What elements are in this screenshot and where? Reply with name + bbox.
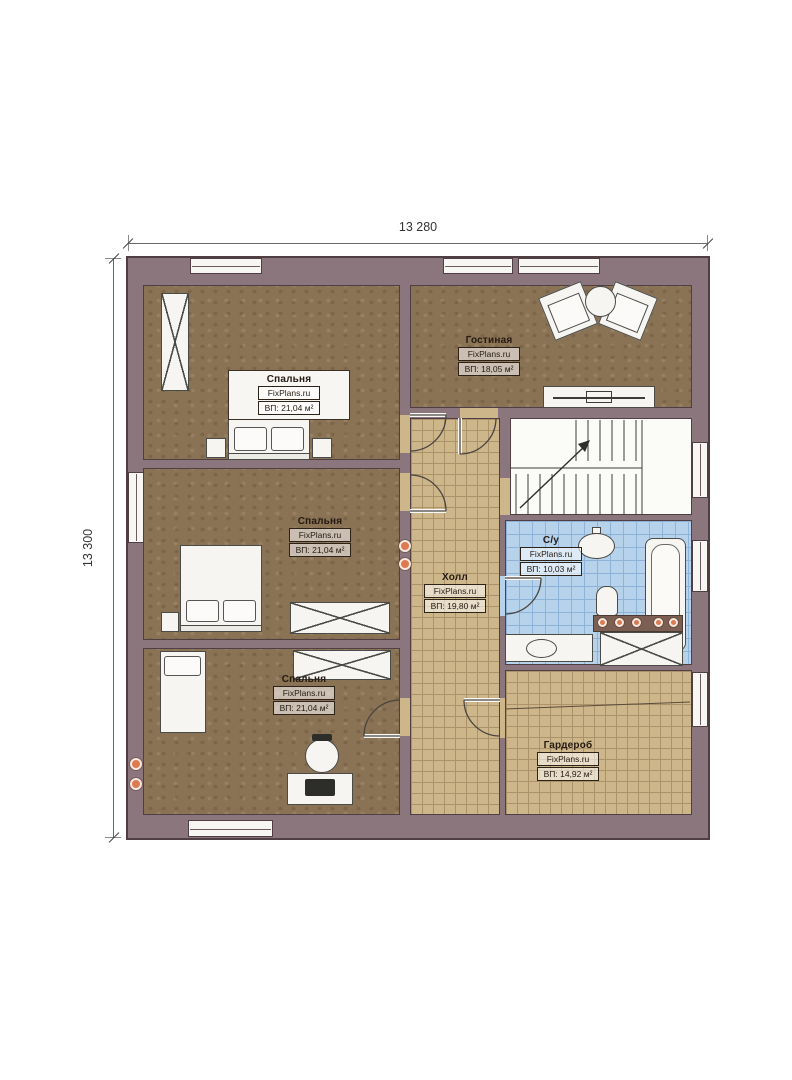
vanity-sink [526,639,557,658]
sideboard-center [586,391,612,403]
window-top-living-2 [518,258,600,274]
desk-chair-back [312,734,332,741]
toilet [596,586,618,616]
room-name: С/у [543,535,559,546]
room-staircase [510,418,692,515]
room-area: ВП: 14,92 м² [537,767,599,781]
room-area: ВП: 18,05 м² [458,362,520,376]
watermark: FixPlans.ru [273,686,335,700]
tv-sideboard [543,386,655,408]
room-name: Спальня [298,516,343,527]
door-opening-bedroom-1 [400,415,410,453]
pillow [164,656,201,676]
window-right-bathroom [692,540,708,592]
bed-headboard [228,453,310,460]
door-opening-bedroom-3 [400,698,410,736]
window-bottom-bedroom-3 [188,820,273,837]
armchair-seat [547,293,590,334]
spotlight [654,618,663,627]
label-bedroom-3: Спальня FixPlans.ru ВП: 21,04 м² [252,674,356,715]
vanity-unit [505,634,593,662]
nightstand [206,438,226,458]
label-hall: Холл FixPlans.ru ВП: 19,80 м² [415,572,495,613]
spotlight [669,618,678,627]
watermark: FixPlans.ru [424,584,486,598]
bed-headboard [180,625,262,632]
window-left-bedroom-2 [128,472,144,543]
double-bed-bedroom-2 [180,545,262,632]
pillow [223,600,256,622]
wardrobe-cabinet-bedroom-1 [161,293,189,391]
watermark: FixPlans.ru [258,386,320,400]
bathroom-cabinet [600,632,683,666]
desk-chair [305,739,339,773]
nightstand [312,438,332,458]
room-name: Гостиная [466,335,513,346]
pillow [271,427,304,451]
spotlight [615,618,624,627]
wall-light [130,778,142,790]
window-top-living-1 [443,258,513,274]
door-opening-living [460,408,498,418]
single-bed-bedroom-3 [160,651,206,733]
watermark: FixPlans.ru [458,347,520,361]
room-area: ВП: 10,03 м² [520,562,582,576]
wall-light [399,540,411,552]
passage-hall-stairs [500,478,510,515]
room-hall [410,418,500,815]
window-right-wardrobe [692,672,708,727]
side-table [585,286,616,317]
watermark: FixPlans.ru [289,528,351,542]
label-bedroom-2: Спальня FixPlans.ru ВП: 21,04 м² [270,516,370,557]
wardrobe-cabinet-bedroom-2 [290,602,390,634]
watermark: FixPlans.ru [537,752,599,766]
dimension-left-line [113,258,114,838]
wall-light [399,558,411,570]
label-bedroom-1: Спальня FixPlans.ru ВП: 21,04 м² [228,370,350,420]
window-top-bedroom-1 [190,258,262,274]
pillow [234,427,267,451]
door-opening-wardrobe [500,698,505,738]
dimension-top-label: 13 280 [395,220,441,234]
wall-light [130,758,142,770]
window-right-stairs [692,442,708,498]
room-area: ВП: 21,04 м² [258,401,320,415]
dimension-left: 13 300 [96,258,118,838]
floor-plan-page: 13 280 13 300 [0,0,792,1080]
dimension-top-line [128,243,708,244]
spotlight [598,618,607,627]
watermark: FixPlans.ru [520,547,582,561]
room-name: Спальня [267,374,312,385]
desk [287,773,353,805]
tap [592,527,601,534]
room-name: Холл [442,572,468,583]
nightstand [161,612,179,632]
room-name: Спальня [282,674,327,685]
room-name: Гардероб [544,740,593,751]
room-area: ВП: 19,80 м² [424,599,486,613]
pillow [186,600,219,622]
floor-plan: Спальня FixPlans.ru ВП: 21,04 м² Спальня… [128,258,708,838]
dimension-top: 13 280 [128,224,708,246]
laptop [305,779,335,796]
door-opening-bathroom [500,576,505,616]
room-area: ВП: 21,04 м² [273,701,335,715]
dimension-left-label: 13 300 [81,525,95,571]
spotlight [632,618,641,627]
label-living-room: Гостиная FixPlans.ru ВП: 18,05 м² [437,335,541,376]
label-bathroom: С/у FixPlans.ru ВП: 10,03 м² [512,535,590,576]
room-area: ВП: 21,04 м² [289,543,351,557]
door-opening-bedroom-2 [400,473,410,511]
label-wardrobe: Гардероб FixPlans.ru ВП: 14,92 м² [518,740,618,781]
